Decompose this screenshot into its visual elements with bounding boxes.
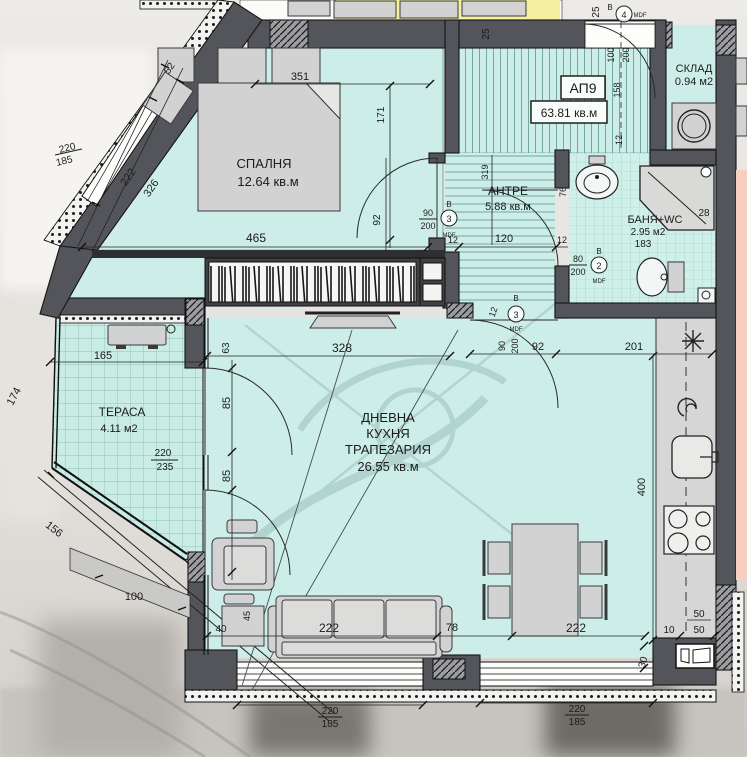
side-table [227, 520, 257, 533]
dim-400: 400 [636, 478, 648, 496]
neighbour-fitting [736, 106, 747, 136]
door-label-entrance: В 4 MDF [607, 3, 647, 22]
hatch-column-top [270, 20, 308, 48]
insulation-bottom [185, 690, 716, 702]
dim-222-sofa: 222 [319, 621, 339, 635]
svg-text:90: 90 [497, 341, 507, 351]
tv-stand [310, 316, 396, 328]
dim-158: 158 [612, 82, 622, 97]
dim-63: 63 [221, 342, 232, 354]
hall-floor [445, 153, 555, 303]
dim-171: 171 [376, 106, 387, 123]
dim-92-h: 92 [532, 341, 544, 353]
dim-25-b: 25 [591, 6, 602, 18]
bath-accessory [698, 288, 715, 303]
dim-185-win: 185 [55, 154, 74, 169]
dining-chair [488, 542, 510, 574]
bookcase [209, 262, 416, 302]
dining-chair [488, 586, 510, 618]
neighbour-fitting [736, 58, 747, 84]
dim-76: 76 [558, 187, 568, 197]
bath-living-wall [555, 303, 718, 318]
dim-165: 165 [94, 350, 112, 362]
dining-chair [580, 586, 602, 618]
dim-201: 201 [625, 341, 643, 353]
svg-text:MDF: MDF [443, 233, 456, 239]
toilet-tank [668, 262, 684, 292]
dim-85-b: 85 [221, 470, 233, 482]
living-label-1: ДНЕВНА [361, 410, 415, 425]
dim-220-t: 220 [155, 448, 172, 459]
dim-185-w1: 185 [322, 719, 339, 730]
dim-328: 328 [332, 341, 352, 355]
dim-156: 156 [43, 519, 65, 540]
toilet [637, 258, 667, 296]
svg-text:90: 90 [423, 208, 433, 218]
dim-222-dining: 222 [566, 621, 586, 635]
dim-85-a: 85 [221, 397, 233, 409]
svg-text:В: В [596, 247, 601, 256]
bedroom-label: СПАЛНЯ [237, 156, 292, 171]
dim-100-door: 100 [606, 47, 616, 62]
dim-120: 120 [495, 233, 513, 245]
hall-area: 5.88 кв.м [485, 201, 531, 213]
terrace-sill [70, 548, 190, 618]
dim-28: 28 [698, 208, 710, 219]
dim-92-v: 92 [372, 214, 383, 226]
svg-text:MDF: MDF [510, 327, 523, 333]
storage-fixtures [672, 103, 716, 149]
terrace-area: 4.11 м2 [100, 423, 137, 435]
floor-plan: АП9 63.81 кв.м СПАЛНЯ 12.64 кв.м АНТРЕ 5… [0, 0, 747, 757]
dining-table [512, 524, 578, 636]
outer-right-wall [716, 20, 736, 670]
svg-text:200: 200 [570, 267, 585, 277]
living-area: 26.55 кв.м [357, 459, 418, 474]
boiler-icon [682, 330, 704, 352]
svg-text:2: 2 [596, 261, 601, 271]
dim-12-a: 12 [614, 135, 624, 145]
dim-50-a: 50 [693, 609, 705, 620]
bath-sink [576, 165, 618, 199]
terrace-floor [52, 318, 203, 560]
dim-25-a: 25 [481, 28, 492, 40]
dim-183: 183 [635, 239, 652, 250]
hall-label: АНТРЕ [488, 184, 528, 198]
storage-area: 0.94 м2 [675, 76, 713, 88]
dim-351: 351 [291, 71, 309, 83]
insulation-top [140, 0, 224, 9]
dim-12-c: 12 [557, 235, 567, 245]
dim-319: 319 [480, 164, 490, 179]
bedroom-area: 12.64 кв.м [237, 174, 298, 189]
ac-unit [108, 325, 166, 345]
unit-id: АП9 [569, 80, 596, 96]
dim-465: 465 [246, 231, 266, 245]
svg-text:200: 200 [510, 338, 520, 353]
terrace-label: ТЕРАСА [99, 405, 146, 419]
svg-text:В: В [607, 3, 612, 12]
nightstand [218, 48, 266, 83]
svg-text:MDF: MDF [593, 279, 606, 285]
dim-200-door: 200 [621, 47, 631, 62]
svg-text:MDF: MDF [634, 13, 647, 19]
dim-50-b: 50 [693, 625, 705, 636]
svg-text:80: 80 [573, 254, 583, 264]
dim-235: 235 [157, 462, 174, 473]
dim-174: 174 [5, 386, 24, 408]
bed [198, 83, 340, 211]
svg-text:3: 3 [513, 310, 518, 320]
bath-label: БАНЯ+WC [628, 214, 683, 226]
pink-highlight [736, 170, 747, 580]
storage-bath-wall [650, 150, 718, 165]
svg-text:В: В [513, 294, 518, 303]
storage-label: СКЛАД [676, 63, 713, 75]
dim-78: 78 [446, 622, 458, 634]
dining-chair [580, 542, 602, 574]
svg-text:4: 4 [621, 10, 626, 20]
svg-text:3: 3 [446, 214, 451, 224]
dim-100-t: 100 [125, 591, 143, 603]
svg-text:200: 200 [420, 221, 435, 231]
dim-10: 10 [663, 625, 675, 636]
svg-text:В: В [446, 200, 451, 209]
dim-220-w1: 220 [322, 706, 339, 717]
unit-area: 63.81 кв.м [541, 106, 598, 120]
bath-area: 2.95 м2 [631, 227, 666, 238]
dim-40: 40 [215, 624, 227, 635]
floorplan-screenshot: { "unit": { "id": "АП9", "area": "63.81 … [0, 0, 747, 757]
dim-185-w2: 185 [569, 717, 586, 728]
living-label-2: КУХНЯ [366, 426, 409, 441]
dim-45: 45 [242, 611, 252, 621]
living-label-3: ТРАПЕЗАРИЯ [345, 442, 431, 457]
dim-220-w2: 220 [569, 704, 586, 715]
